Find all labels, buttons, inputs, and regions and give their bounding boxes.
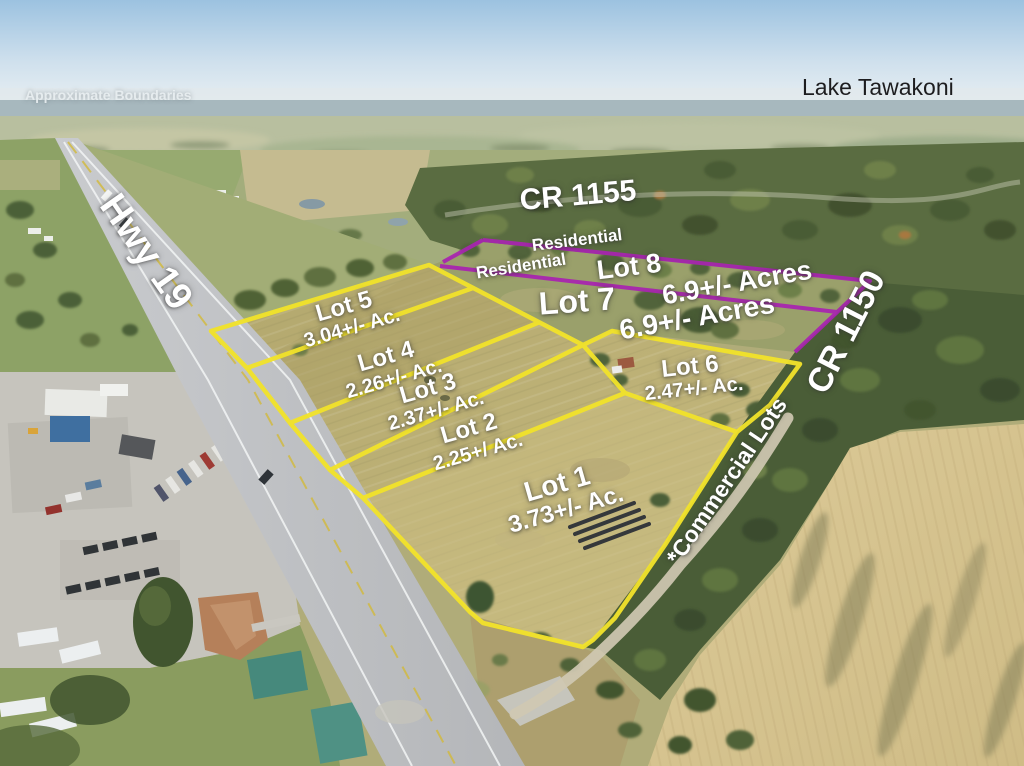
aerial-photo-background <box>0 0 1024 766</box>
aerial-lot-map: Approximate Boundaries Lake Tawakoni CR … <box>0 0 1024 766</box>
lot7-name: Lot 7 <box>538 282 616 319</box>
lake-tawakoni-label: Lake Tawakoni <box>802 76 954 99</box>
watermark-approximate-boundaries: Approximate Boundaries <box>25 88 191 102</box>
